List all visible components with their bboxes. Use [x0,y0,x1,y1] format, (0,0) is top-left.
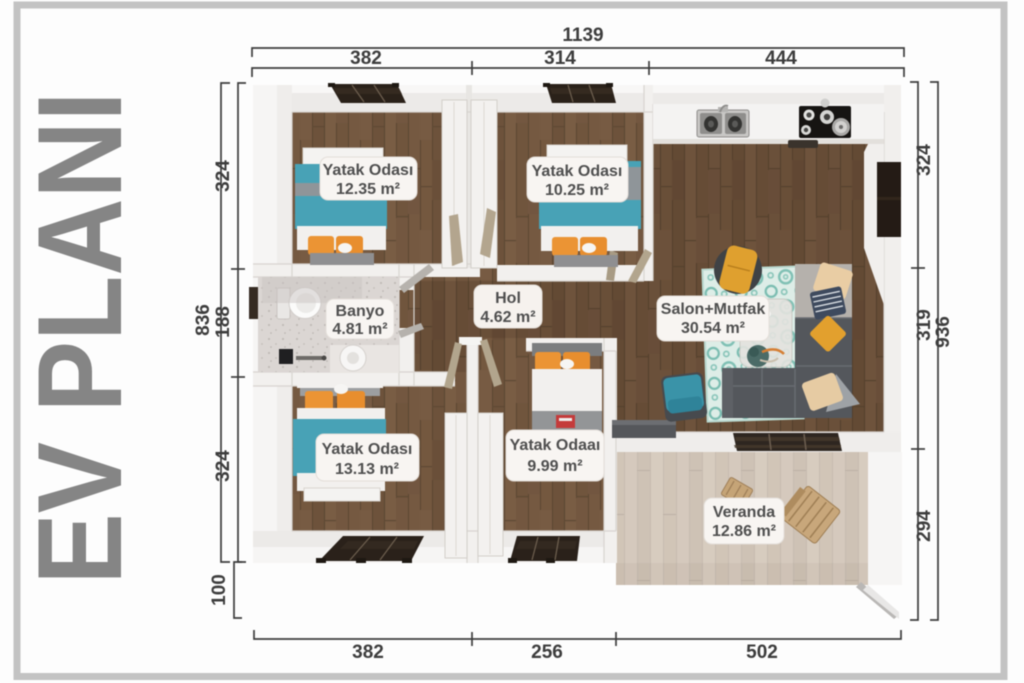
svg-text:382: 382 [352,642,384,663]
svg-text:936: 936 [933,316,954,348]
svg-text:13.13 m²: 13.13 m² [335,461,399,478]
svg-text:100: 100 [209,574,230,606]
svg-text:294: 294 [914,510,935,542]
svg-text:30.54 m²: 30.54 m² [681,320,745,337]
svg-text:502: 502 [746,642,778,663]
svg-text:836: 836 [193,304,214,336]
svg-text:188: 188 [213,306,234,338]
svg-text:12.35 m²: 12.35 m² [336,181,400,198]
svg-text:444: 444 [765,48,797,69]
svg-text:324: 324 [914,144,935,176]
svg-text:Yatak Odası: Yatak Odası [322,441,413,458]
svg-text:314: 314 [544,48,576,69]
svg-text:324: 324 [213,160,234,192]
svg-text:256: 256 [531,642,563,663]
svg-text:319: 319 [914,309,935,341]
svg-text:9.99 m²: 9.99 m² [527,458,582,475]
svg-text:382: 382 [350,48,382,69]
svg-text:Hol: Hol [495,290,521,307]
svg-text:Veranda: Veranda [713,504,775,521]
svg-text:Yatak Odası: Yatak Odası [323,162,414,179]
svg-text:324: 324 [213,450,234,482]
svg-text:12.86 m²: 12.86 m² [712,523,776,540]
svg-text:EV PLANI: EV PLANI [13,92,147,585]
svg-text:Salon+Mutfak: Salon+Mutfak [661,301,766,318]
svg-text:Banyo: Banyo [336,303,385,320]
svg-text:4.81 m²: 4.81 m² [332,321,387,338]
svg-text:Yatak Odaaı: Yatak Odaaı [510,437,601,454]
svg-text:1139: 1139 [562,25,603,46]
svg-text:Yatak Odası: Yatak Odası [532,163,623,180]
svg-text:10.25 m²: 10.25 m² [545,182,609,199]
svg-text:4.62 m²: 4.62 m² [480,309,535,326]
